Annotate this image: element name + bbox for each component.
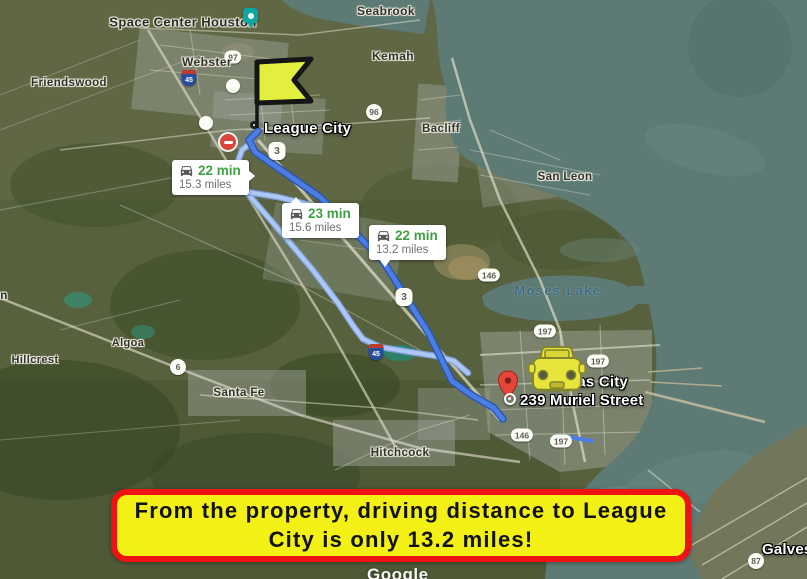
info-banner: From the property, driving distance to L… [111,489,691,562]
flag-marker [226,54,318,132]
bubble-pointer [290,197,302,204]
route-shield-3: 3 [396,288,413,306]
route-shield-96: 96 [366,104,382,120]
map-label-webster: Webster [182,55,232,69]
map-label-bacliff: Bacliff [422,123,460,135]
map-label-edge-partial: n [0,290,7,302]
car-icon [289,206,304,221]
car-clipart-icon [528,344,586,396]
route-bubble-alt2[interactable]: 23 min 15.6 miles [282,203,359,238]
bubble-pointer [248,170,255,182]
route-distance: 15.3 miles [179,179,241,191]
car-icon [376,228,391,243]
bubble-pointer [379,259,391,267]
map-label-santa-fe: Santa Fe [213,387,264,399]
map-label-galveston: Galveston [762,541,807,558]
map-label-friendswood: Friendswood [31,77,107,89]
interstate-45-shield: 45 [182,70,197,86]
route-bubble-alt1[interactable]: 22 min 15.3 miles [172,160,249,195]
route-shield-197: 197 [587,355,609,368]
route-distance: 13.2 miles [376,244,438,256]
route-shield-146: 146 [511,429,533,442]
interstate-45-shield: 45 [369,344,384,360]
route-shield-197: 197 [550,435,572,448]
route-shield-197: 197 [534,325,556,338]
google-watermark: Google [367,565,429,579]
route-bubble-selected[interactable]: 22 min 13.2 miles [369,225,446,260]
map-label-space-center-houston: Space Center Houston [109,15,256,30]
destination-address-label: 239 Muriel Street [520,392,643,409]
route-duration: 22 min [198,163,241,178]
map-label-seabrook: Seabrook [357,4,415,18]
map-screenshot: 3 3 146 146 197 197 197 97 6 96 87 45 45… [0,0,807,579]
map-label-hitchcock: Hitchcock [371,447,430,459]
attraction-pin-icon[interactable] [243,8,258,23]
route-distance: 15.6 miles [289,222,351,234]
banner-text: From the property, driving distance to L… [127,497,675,554]
route-shield-3: 3 [269,142,286,160]
route-duration: 22 min [395,228,438,243]
map-label-hillcrest: Hillcrest [11,354,58,366]
destination-circle-icon[interactable] [504,393,516,405]
car-icon [179,163,194,178]
map-label-algoa: Algoa [112,337,145,349]
map-label-san-leon: San Leon [538,171,593,183]
route-shield-6: 6 [170,359,186,375]
route-shield-146: 146 [478,269,500,282]
road-closed-icon[interactable] [220,134,236,150]
road-shield-blank [199,116,213,130]
map-label-kemah: Kemah [372,49,414,63]
map-label-moses-lake: Moses Lake [515,284,602,298]
route-duration: 23 min [308,206,351,221]
